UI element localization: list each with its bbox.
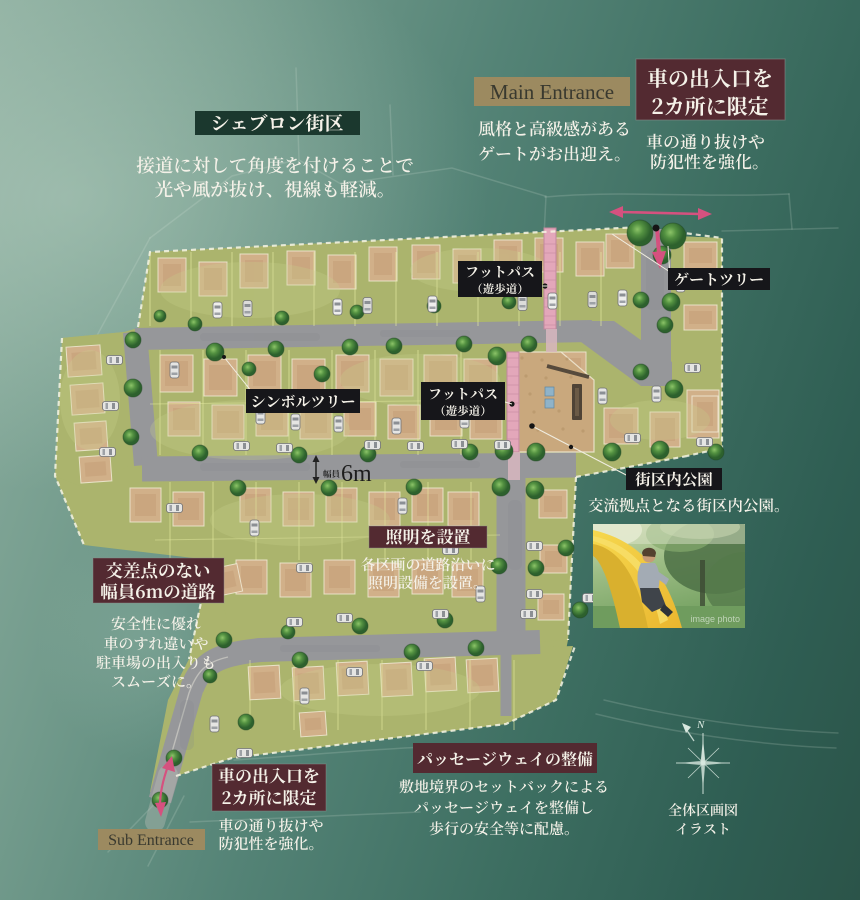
svg-text:Main Entrance: Main Entrance — [490, 80, 614, 104]
svg-text:N: N — [696, 719, 705, 731]
svg-text:image photo: image photo — [690, 614, 740, 624]
svg-text:6m: 6m — [341, 461, 372, 487]
svg-text:Sub Entrance: Sub Entrance — [108, 832, 194, 849]
